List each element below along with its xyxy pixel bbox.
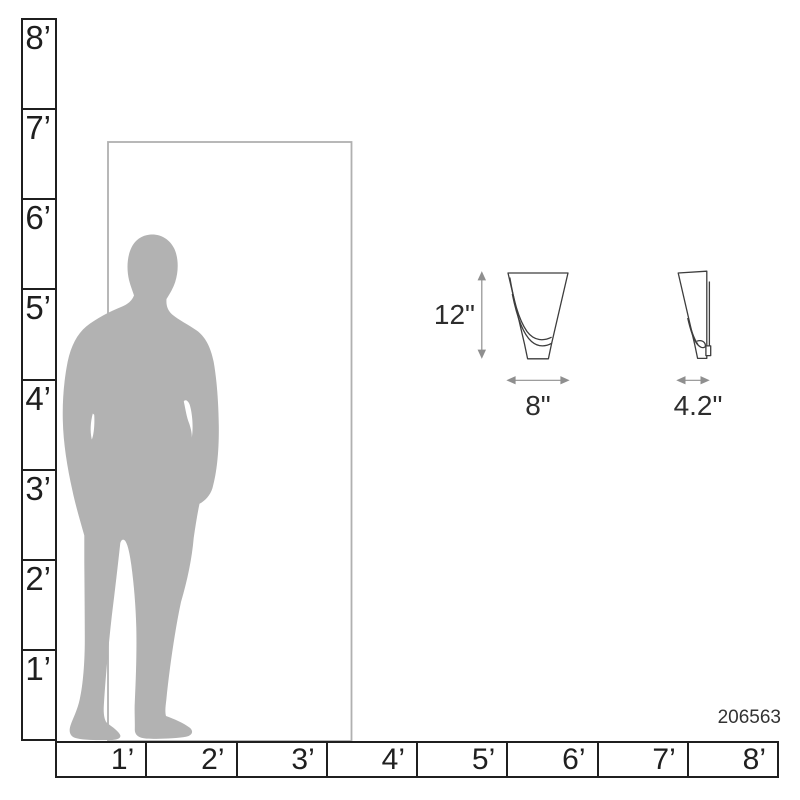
- ruler-tick-label: 7’: [23, 110, 55, 200]
- horizontal-width-ruler: 1’ 2’ 3’ 4’ 5’ 6’ 7’ 8’: [55, 741, 779, 778]
- ruler-tick-label: 3’: [23, 471, 55, 561]
- sconce-side-view-drawing-icon: [678, 271, 711, 358]
- ruler-tick-label: 2’: [23, 561, 55, 651]
- ruler-tick-label: 8’: [23, 20, 55, 110]
- height-dimension-arrow: [479, 273, 486, 358]
- width-dimension-arrow: [508, 377, 568, 383]
- sconce-front-view-drawing-icon: [508, 273, 568, 359]
- ruler-tick-label: 6’: [508, 743, 598, 776]
- ruler-tick-label: 5’: [418, 743, 508, 776]
- ruler-tick-label: 6’: [23, 200, 55, 290]
- ruler-tick-label: 8’: [689, 743, 777, 776]
- fixture-depth-label: 4.2": [661, 391, 735, 422]
- fixture-height-label: 12": [423, 300, 475, 331]
- product-code: 206563: [620, 707, 781, 729]
- ruler-tick-label: 4’: [23, 381, 55, 471]
- ruler-tick-label: 4’: [328, 743, 418, 776]
- fixture-width-label: 8": [508, 391, 568, 422]
- ruler-tick-label: 7’: [599, 743, 689, 776]
- ruler-tick-label: 2’: [147, 743, 237, 776]
- depth-dimension-arrow: [678, 377, 709, 383]
- ruler-tick-label: 1’: [23, 651, 55, 739]
- standing-man-silhouette-icon: [63, 234, 219, 740]
- ruler-tick-label: 1’: [57, 743, 147, 776]
- vertical-height-ruler: 8’ 7’ 6’ 5’ 4’ 3’ 2’ 1’: [21, 18, 57, 741]
- ruler-tick-label: 5’: [23, 290, 55, 380]
- ruler-tick-label: 3’: [238, 743, 328, 776]
